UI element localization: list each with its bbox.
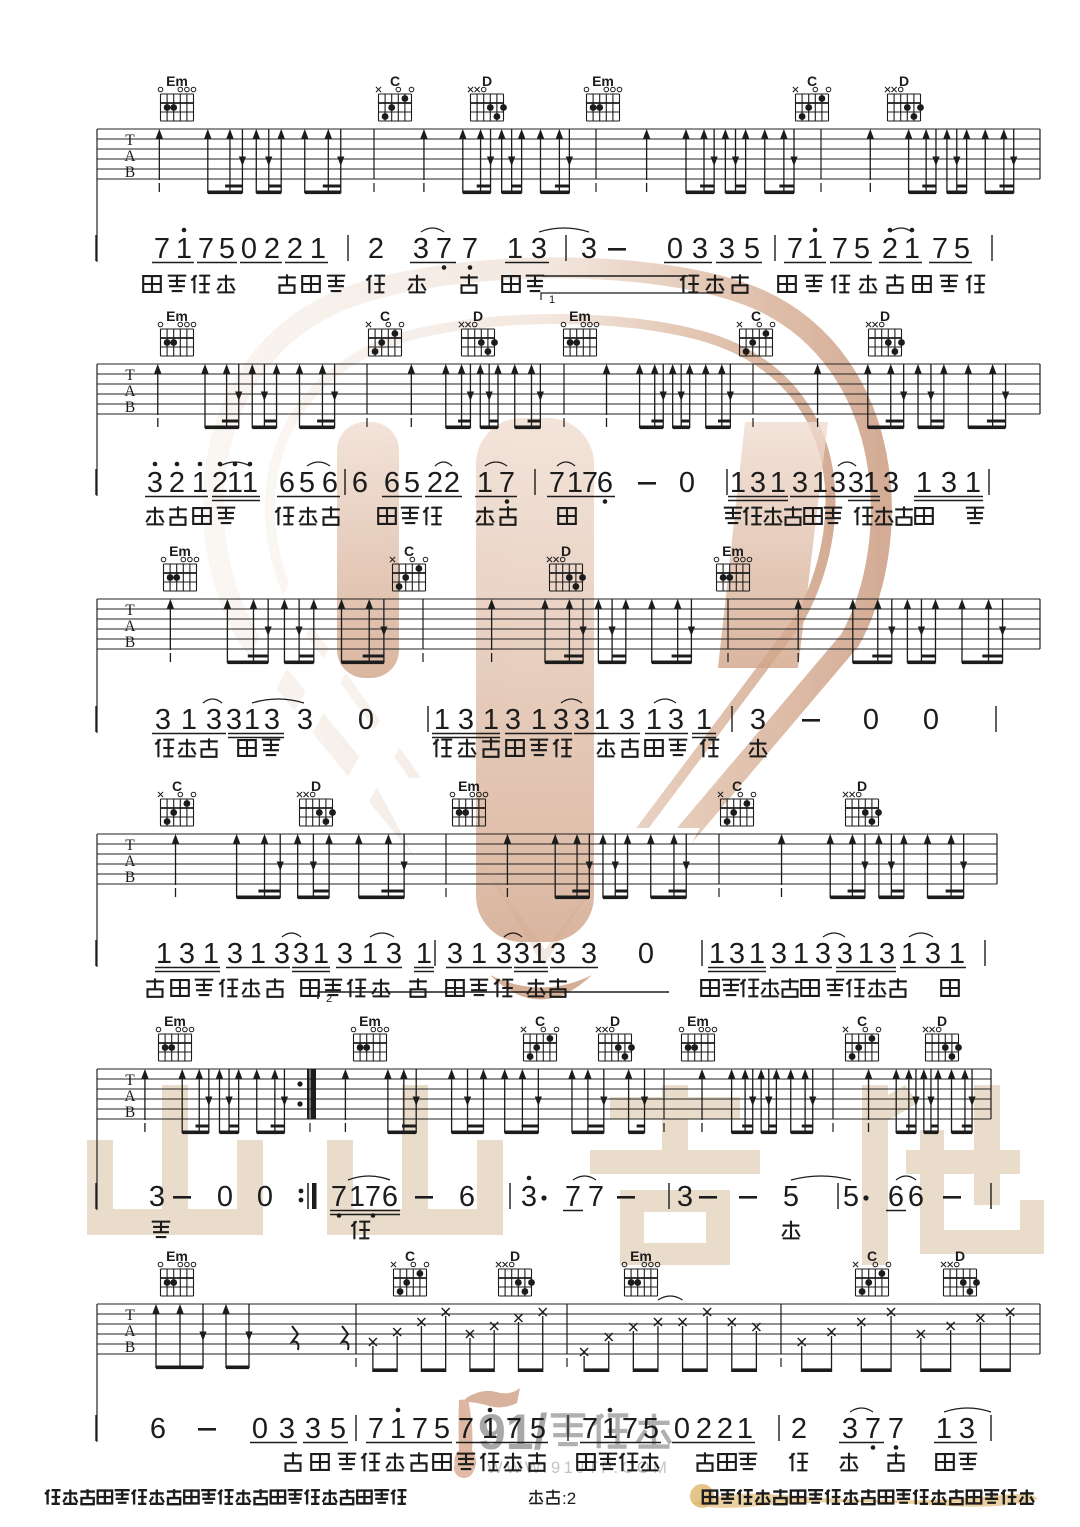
svg-text:1: 1 (737, 1413, 753, 1445)
svg-text:B: B (125, 399, 135, 416)
svg-text:7: 7 (462, 233, 478, 265)
svg-text:C: C (807, 73, 817, 89)
svg-text:C: C (172, 778, 182, 794)
svg-text:1: 1 (549, 294, 555, 306)
svg-text:3: 3 (155, 704, 171, 736)
svg-text:3: 3 (149, 1181, 165, 1213)
svg-text:2: 2 (326, 993, 332, 1005)
svg-text:3: 3 (227, 938, 243, 970)
svg-text:A: A (124, 383, 136, 400)
svg-text:3: 3 (837, 938, 853, 970)
svg-text:Em: Em (592, 73, 614, 89)
svg-text:A: A (124, 1088, 136, 1105)
svg-text:3: 3 (293, 938, 309, 970)
svg-text:6: 6 (352, 467, 368, 499)
svg-text:6: 6 (459, 1181, 475, 1213)
svg-text:3: 3 (147, 467, 163, 499)
svg-text:3: 3 (771, 938, 787, 970)
svg-text:3: 3 (581, 938, 597, 970)
svg-text:1: 1 (477, 467, 493, 499)
svg-text:3: 3 (574, 704, 590, 736)
svg-text:A: A (124, 853, 136, 870)
svg-text:Em: Em (359, 1013, 381, 1029)
svg-text:T: T (125, 1307, 135, 1324)
svg-text:3: 3 (879, 938, 895, 970)
svg-text:1: 1 (646, 704, 662, 736)
svg-text:C: C (867, 1248, 877, 1264)
svg-text:3: 3 (521, 1181, 537, 1213)
svg-text:D: D (510, 1248, 520, 1264)
svg-text:6: 6 (382, 1181, 398, 1213)
svg-text:1: 1 (176, 233, 192, 265)
svg-text:1: 1 (936, 1413, 952, 1445)
svg-text:1: 1 (793, 938, 809, 970)
svg-text:3: 3 (447, 938, 463, 970)
svg-text:3: 3 (581, 233, 597, 265)
svg-text:B: B (125, 164, 135, 181)
svg-text:1: 1 (770, 467, 786, 499)
svg-text:3: 3 (553, 704, 569, 736)
svg-text:7: 7 (565, 1181, 581, 1213)
svg-text:1: 1 (250, 938, 266, 970)
svg-text:3: 3 (883, 467, 899, 499)
svg-text:C: C (732, 778, 742, 794)
svg-text:D: D (473, 308, 483, 324)
svg-text:3: 3 (386, 938, 402, 970)
svg-text:0: 0 (667, 233, 683, 265)
svg-text:1: 1 (916, 467, 932, 499)
svg-text:Em: Em (169, 543, 191, 559)
svg-text:Em: Em (687, 1013, 709, 1029)
svg-text:1: 1 (949, 938, 965, 970)
svg-text:3: 3 (550, 938, 566, 970)
svg-text:3: 3 (458, 704, 474, 736)
svg-text:3: 3 (274, 938, 290, 970)
svg-text:A: A (124, 1323, 136, 1340)
svg-text:7: 7 (412, 1413, 428, 1445)
svg-text:C: C (535, 1013, 545, 1029)
svg-text:3: 3 (305, 1413, 321, 1445)
svg-text:5: 5 (299, 467, 315, 499)
svg-text:0: 0 (358, 704, 374, 736)
svg-text:3: 3 (677, 1181, 693, 1213)
svg-text:7: 7 (888, 1413, 904, 1445)
svg-text:3: 3 (729, 938, 745, 970)
svg-text:3: 3 (750, 467, 766, 499)
svg-text:3: 3 (179, 938, 195, 970)
svg-text:1: 1 (434, 704, 450, 736)
svg-text:3: 3 (830, 467, 846, 499)
svg-text:Em: Em (458, 778, 480, 794)
svg-text:6: 6 (888, 1181, 904, 1213)
svg-text:1: 1 (901, 938, 917, 970)
svg-text:A: A (124, 148, 136, 165)
svg-text:3: 3 (496, 938, 512, 970)
svg-text:1: 1 (390, 1413, 406, 1445)
svg-text:B: B (125, 869, 135, 886)
svg-text:C: C (751, 308, 761, 324)
svg-text:0: 0 (252, 1413, 268, 1445)
svg-text:7: 7 (622, 1413, 638, 1445)
svg-text:0: 0 (679, 467, 695, 499)
svg-text:1: 1 (812, 467, 828, 499)
svg-text:2: 2 (444, 467, 460, 499)
svg-text:1: 1 (362, 938, 378, 970)
svg-text:7: 7 (436, 233, 452, 265)
svg-text:2: 2 (212, 467, 228, 499)
svg-text:3: 3 (505, 704, 521, 736)
svg-text:1: 1 (965, 467, 981, 499)
svg-text:3: 3 (719, 233, 735, 265)
svg-text:5: 5 (954, 233, 970, 265)
svg-text:5: 5 (219, 233, 235, 265)
svg-text:T: T (125, 602, 135, 619)
svg-text:3: 3 (226, 704, 242, 736)
svg-text:2: 2 (264, 233, 280, 265)
svg-text:7: 7 (198, 233, 214, 265)
svg-text:0: 0 (863, 704, 879, 736)
svg-text:1: 1 (192, 467, 208, 499)
svg-text:1: 1 (531, 704, 547, 736)
svg-text:C: C (404, 543, 414, 559)
svg-text:0: 0 (217, 1181, 233, 1213)
svg-text:3: 3 (925, 938, 941, 970)
svg-text:6: 6 (908, 1181, 924, 1213)
svg-text:5: 5 (434, 1413, 450, 1445)
svg-text:C: C (380, 308, 390, 324)
svg-text:D: D (937, 1013, 947, 1029)
svg-text:2: 2 (717, 1413, 733, 1445)
svg-text:3: 3 (279, 1413, 295, 1445)
svg-text:3: 3 (692, 233, 708, 265)
svg-text:3: 3 (514, 938, 530, 970)
svg-text:7: 7 (582, 467, 598, 499)
svg-text:3: 3 (941, 467, 957, 499)
svg-text:D: D (482, 73, 492, 89)
svg-text:3: 3 (264, 704, 280, 736)
svg-text:0: 0 (674, 1413, 690, 1445)
svg-text:2: 2 (791, 1413, 807, 1445)
svg-text:7: 7 (499, 467, 515, 499)
svg-text:2: 2 (882, 233, 898, 265)
svg-text:1: 1 (181, 704, 197, 736)
svg-text:1: 1 (313, 938, 329, 970)
svg-text:1: 1 (471, 938, 487, 970)
svg-text:7: 7 (154, 233, 170, 265)
svg-text:3: 3 (848, 467, 864, 499)
svg-text:3: 3 (792, 467, 808, 499)
svg-text:5: 5 (330, 1413, 346, 1445)
svg-text:5: 5 (783, 1181, 799, 1213)
svg-text:D: D (311, 778, 321, 794)
svg-text:3: 3 (337, 938, 353, 970)
svg-text:C: C (390, 73, 400, 89)
svg-text:1: 1 (531, 938, 547, 970)
svg-text:7: 7 (549, 467, 565, 499)
svg-text:7: 7 (506, 1413, 522, 1445)
svg-text:5: 5 (530, 1413, 546, 1445)
svg-text:3: 3 (619, 704, 635, 736)
svg-text:5: 5 (404, 467, 420, 499)
svg-text:1: 1 (602, 1413, 618, 1445)
svg-text:1: 1 (749, 938, 765, 970)
svg-text:1: 1 (244, 704, 260, 736)
svg-text:3: 3 (750, 704, 766, 736)
svg-text:3: 3 (413, 233, 429, 265)
svg-text:D: D (610, 1013, 620, 1029)
svg-text:1: 1 (227, 467, 243, 499)
svg-text:1: 1 (416, 938, 432, 970)
svg-text:T: T (125, 1072, 135, 1089)
svg-text:5: 5 (643, 1413, 659, 1445)
svg-text:D: D (857, 778, 867, 794)
svg-text:B: B (125, 1339, 135, 1356)
svg-text:3: 3 (206, 704, 222, 736)
svg-text:0: 0 (923, 704, 939, 736)
svg-text:Em: Em (164, 1013, 186, 1029)
svg-text:2: 2 (696, 1413, 712, 1445)
svg-text:6: 6 (322, 467, 338, 499)
svg-text:5: 5 (843, 1181, 859, 1213)
svg-text:C: C (857, 1013, 867, 1029)
svg-text:D: D (880, 308, 890, 324)
svg-text:3: 3 (297, 704, 313, 736)
svg-text:7: 7 (458, 1413, 474, 1445)
svg-text:7: 7 (832, 233, 848, 265)
svg-text:7: 7 (368, 1413, 384, 1445)
svg-text:7: 7 (582, 1413, 598, 1445)
svg-text:T: T (125, 132, 135, 149)
svg-text:7: 7 (365, 1181, 381, 1213)
svg-text:Em: Em (166, 1248, 188, 1264)
svg-text:6: 6 (384, 467, 400, 499)
svg-text:Em: Em (722, 543, 744, 559)
svg-text::2: :2 (562, 1489, 576, 1508)
svg-text:1: 1 (156, 938, 172, 970)
svg-text:T: T (125, 837, 135, 854)
svg-text:1: 1 (203, 938, 219, 970)
svg-text:3: 3 (815, 938, 831, 970)
svg-text:3: 3 (668, 704, 684, 736)
svg-text:1: 1 (709, 938, 725, 970)
svg-text:2: 2 (169, 467, 185, 499)
svg-text:0: 0 (638, 938, 654, 970)
svg-text:1: 1 (863, 467, 879, 499)
svg-text:2: 2 (427, 467, 443, 499)
svg-text:6: 6 (279, 467, 295, 499)
svg-text:D: D (561, 543, 571, 559)
svg-text:1: 1 (507, 233, 523, 265)
svg-text:5: 5 (744, 233, 760, 265)
svg-text:6: 6 (150, 1413, 166, 1445)
svg-text:3: 3 (959, 1413, 975, 1445)
svg-text:1: 1 (807, 233, 823, 265)
svg-text:7: 7 (331, 1181, 347, 1213)
svg-text:6: 6 (597, 467, 613, 499)
svg-text:1: 1 (310, 233, 326, 265)
svg-text:3: 3 (531, 233, 547, 265)
svg-text:7: 7 (787, 233, 803, 265)
svg-text:1: 1 (349, 1181, 365, 1213)
svg-text:1: 1 (858, 938, 874, 970)
svg-text:1: 1 (696, 704, 712, 736)
svg-text:0: 0 (257, 1181, 273, 1213)
svg-text:7: 7 (865, 1413, 881, 1445)
svg-text:Em: Em (630, 1248, 652, 1264)
svg-text:1: 1 (730, 467, 746, 499)
svg-text:7: 7 (588, 1181, 604, 1213)
svg-text:0: 0 (241, 233, 257, 265)
svg-text:2: 2 (287, 233, 303, 265)
svg-text:D: D (899, 73, 909, 89)
svg-text:1: 1 (567, 467, 583, 499)
svg-text:1: 1 (483, 704, 499, 736)
svg-text:Em: Em (166, 308, 188, 324)
svg-text:5: 5 (854, 233, 870, 265)
svg-text:D: D (955, 1248, 965, 1264)
svg-text:1: 1 (482, 1413, 498, 1445)
svg-text:1: 1 (594, 704, 610, 736)
svg-text:B: B (125, 1104, 135, 1121)
svg-text:B: B (125, 634, 135, 651)
svg-text:2: 2 (368, 233, 384, 265)
svg-text:1: 1 (242, 467, 258, 499)
svg-text:Em: Em (166, 73, 188, 89)
svg-text:A: A (124, 618, 136, 635)
svg-text:T: T (125, 367, 135, 384)
svg-text:C: C (405, 1248, 415, 1264)
svg-text:7: 7 (932, 233, 948, 265)
svg-text:3: 3 (842, 1413, 858, 1445)
svg-text:Em: Em (569, 308, 591, 324)
svg-text:1: 1 (904, 233, 920, 265)
